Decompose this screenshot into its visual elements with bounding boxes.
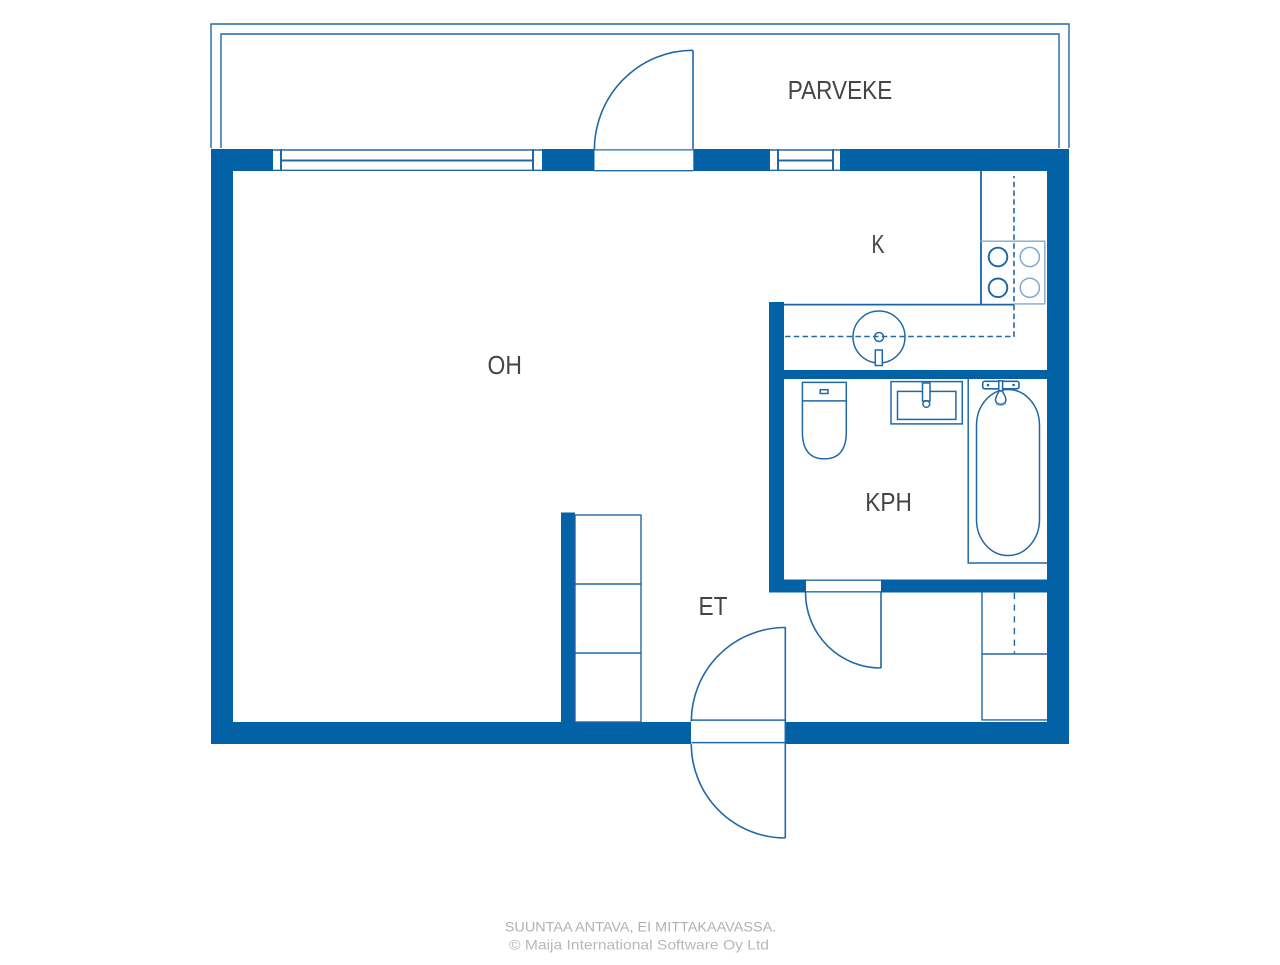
svg-text:PARVEKE: PARVEKE xyxy=(788,75,893,105)
svg-text:ET: ET xyxy=(699,591,728,621)
svg-text:OH: OH xyxy=(488,350,522,380)
svg-text:KPH: KPH xyxy=(865,487,912,517)
svg-text:K: K xyxy=(872,229,885,259)
svg-text:SUUNTAA ANTAVA, EI MITTAKAAVAS: SUUNTAA ANTAVA, EI MITTAKAAVASSA. xyxy=(505,919,776,935)
svg-text:© Maija International Software: © Maija International Software Oy Ltd xyxy=(509,937,769,953)
